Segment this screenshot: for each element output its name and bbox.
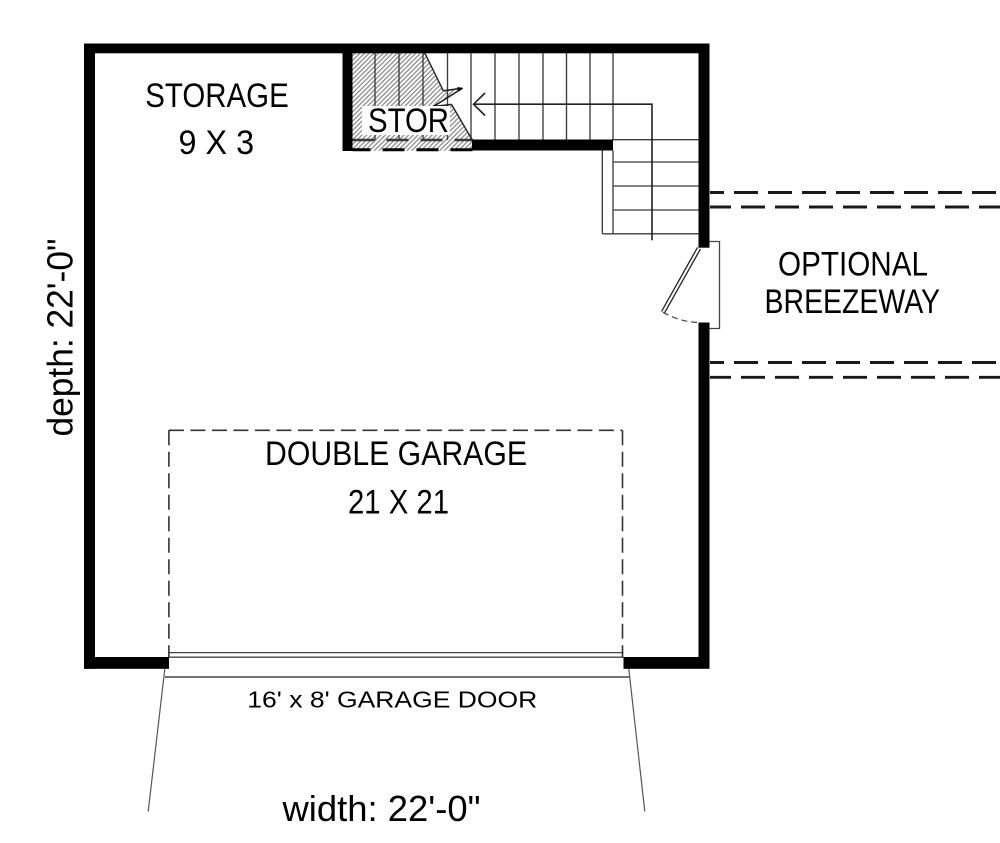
svg-text:BREEZEWAY: BREEZEWAY <box>765 283 941 321</box>
svg-text:9 X 3: 9 X 3 <box>179 124 255 162</box>
svg-text:21 X 21: 21 X 21 <box>348 484 449 522</box>
svg-text:depth: 22'-0": depth: 22'-0" <box>40 239 81 437</box>
svg-text:STORAGE: STORAGE <box>145 77 289 115</box>
svg-text:STOR: STOR <box>368 102 449 140</box>
svg-text:16' x 8' GARAGE DOOR: 16' x 8' GARAGE DOOR <box>247 687 537 713</box>
svg-text:DOUBLE GARAGE: DOUBLE GARAGE <box>265 435 527 473</box>
svg-text:width: 22'-0": width: 22'-0" <box>281 788 480 829</box>
svg-text:OPTIONAL: OPTIONAL <box>778 246 928 284</box>
